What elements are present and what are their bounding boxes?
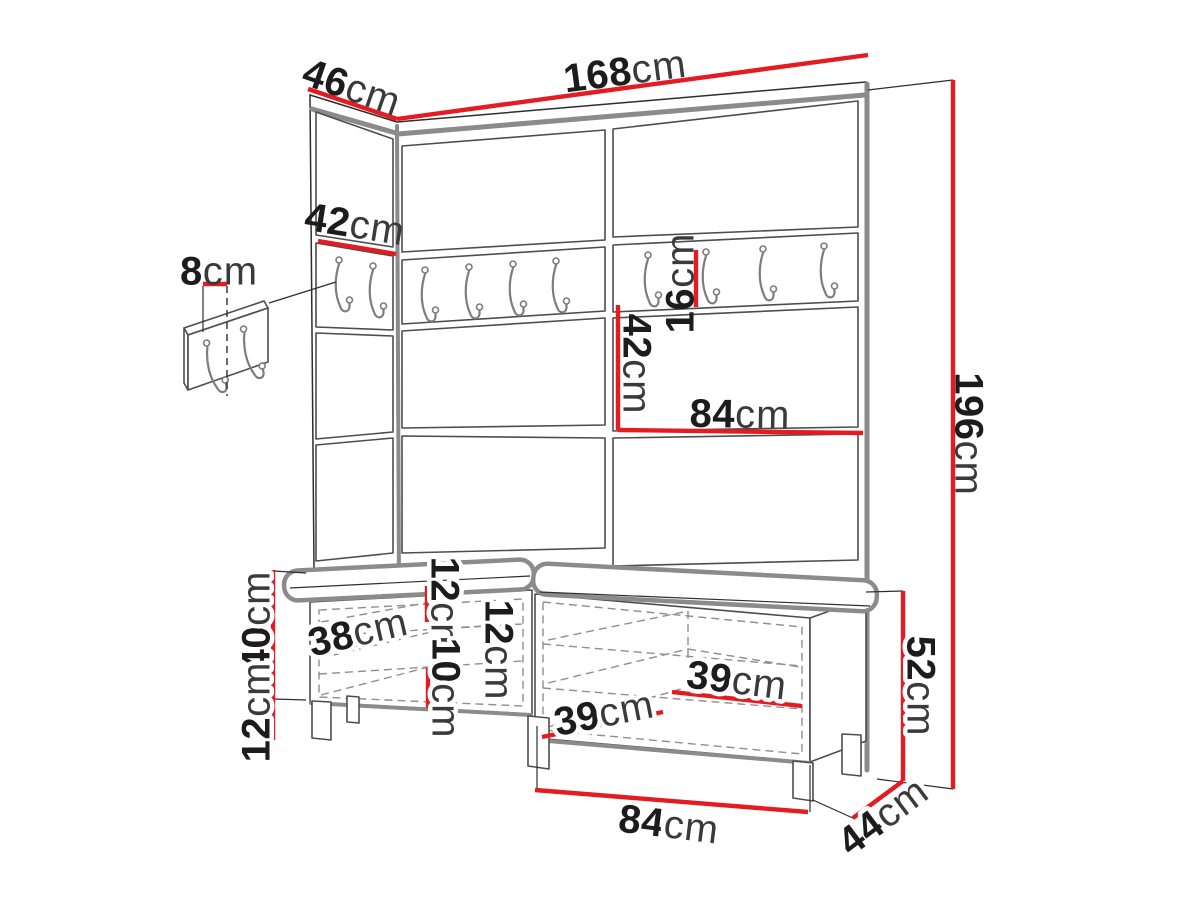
dim-label-40: 40cm: [235, 571, 279, 672]
wall-corner-edge: [397, 126, 399, 588]
ext-196-top: [868, 80, 953, 90]
dim-label-42-mid: 42cm: [614, 314, 658, 415]
dim-label-8: 8cm: [180, 250, 258, 294]
dim-label-12-mid: 12cm: [476, 600, 520, 701]
dim-label-44: 44cm: [830, 769, 937, 865]
bench-leg: [312, 701, 331, 740]
panel-left-bottom: [316, 438, 393, 561]
dim-label-10: 10cm: [423, 638, 467, 739]
wall-unit-left-edge: [310, 95, 314, 570]
bench: [283, 559, 877, 801]
panel-top-left: [402, 130, 605, 252]
panel-mid-left: [402, 318, 605, 428]
panel-left-mid: [316, 333, 393, 439]
dim-label-52: 52cm: [898, 636, 942, 737]
bench-leg: [842, 734, 861, 776]
panel-bottom-right: [613, 434, 858, 566]
hook-strip-callout: [184, 282, 336, 396]
panel-bottom-left: [402, 436, 605, 553]
bench-leg: [347, 696, 359, 723]
dim-label-46: 46cm: [297, 50, 407, 124]
ext-40-bottom: [274, 699, 306, 700]
panel-top-right: [613, 101, 858, 237]
dim-label-84-mid: 84cm: [689, 392, 791, 438]
dim-label-12-left: 12cm: [235, 662, 279, 763]
left-column-panels: [316, 112, 393, 561]
dim-label-196: 196cm: [946, 372, 990, 496]
bench-leg: [528, 716, 549, 769]
dim-label-168: 168cm: [561, 42, 689, 102]
hook-rail-left: [402, 247, 605, 324]
furniture-dimension-diagram: 46cm 168cm 42cm 8cm 16cm 42cm 84cm 196cm…: [0, 0, 1200, 900]
dim-label-16: 16cm: [659, 233, 703, 334]
diagram-canvas: 46cm 168cm 42cm 8cm 16cm 42cm 84cm 196cm…: [0, 0, 1200, 900]
